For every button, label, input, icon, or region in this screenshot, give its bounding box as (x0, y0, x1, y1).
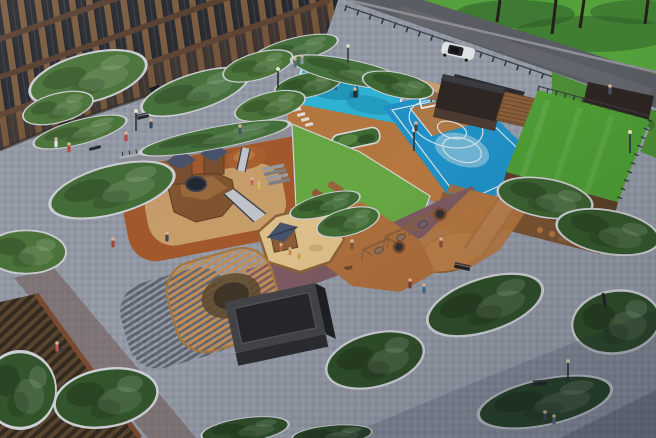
courtyard-render (0, 0, 656, 438)
